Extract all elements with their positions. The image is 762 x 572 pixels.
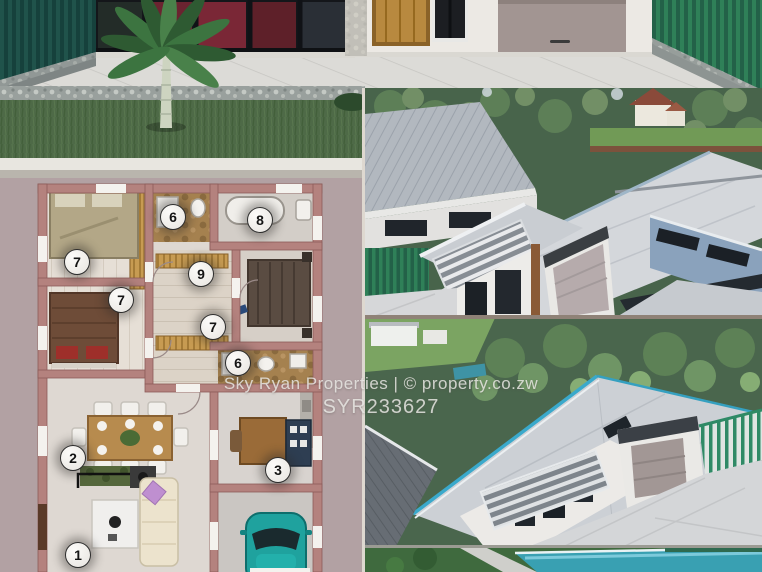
aerial-render-strip-art (365, 548, 762, 572)
bed-2 (50, 293, 118, 368)
garage-handle (550, 40, 570, 43)
floor-plan-panel (0, 178, 365, 572)
entry-pillar (345, 0, 367, 56)
panel-divider-vertical (362, 88, 365, 572)
wood-column (531, 244, 540, 318)
wooden-door (372, 0, 430, 46)
aerial-render-strip (365, 548, 762, 572)
front-window (432, 0, 468, 42)
pebble-border (0, 86, 365, 102)
entry-door (38, 504, 47, 550)
sidewalk (0, 158, 365, 178)
trees-backdrop-2 (365, 318, 762, 413)
property-listing-collage: Sky Ryan Properties | © property.co.zw S… (0, 0, 762, 572)
stove (286, 420, 311, 466)
side-fence (365, 248, 429, 296)
garage-door (498, 0, 626, 52)
panel-divider-2 (365, 545, 762, 548)
panel-divider-1 (365, 315, 762, 319)
bathtub (226, 197, 311, 224)
aerial-render-1 (365, 88, 762, 318)
car (240, 513, 312, 572)
neighbor-roof-2 (365, 426, 437, 548)
aerial-render-1-art (365, 88, 762, 318)
bed-1 (50, 190, 138, 258)
aerial-render-2-art (365, 318, 762, 548)
floor-plan-art (0, 178, 365, 572)
aerial-render-2 (365, 318, 762, 548)
